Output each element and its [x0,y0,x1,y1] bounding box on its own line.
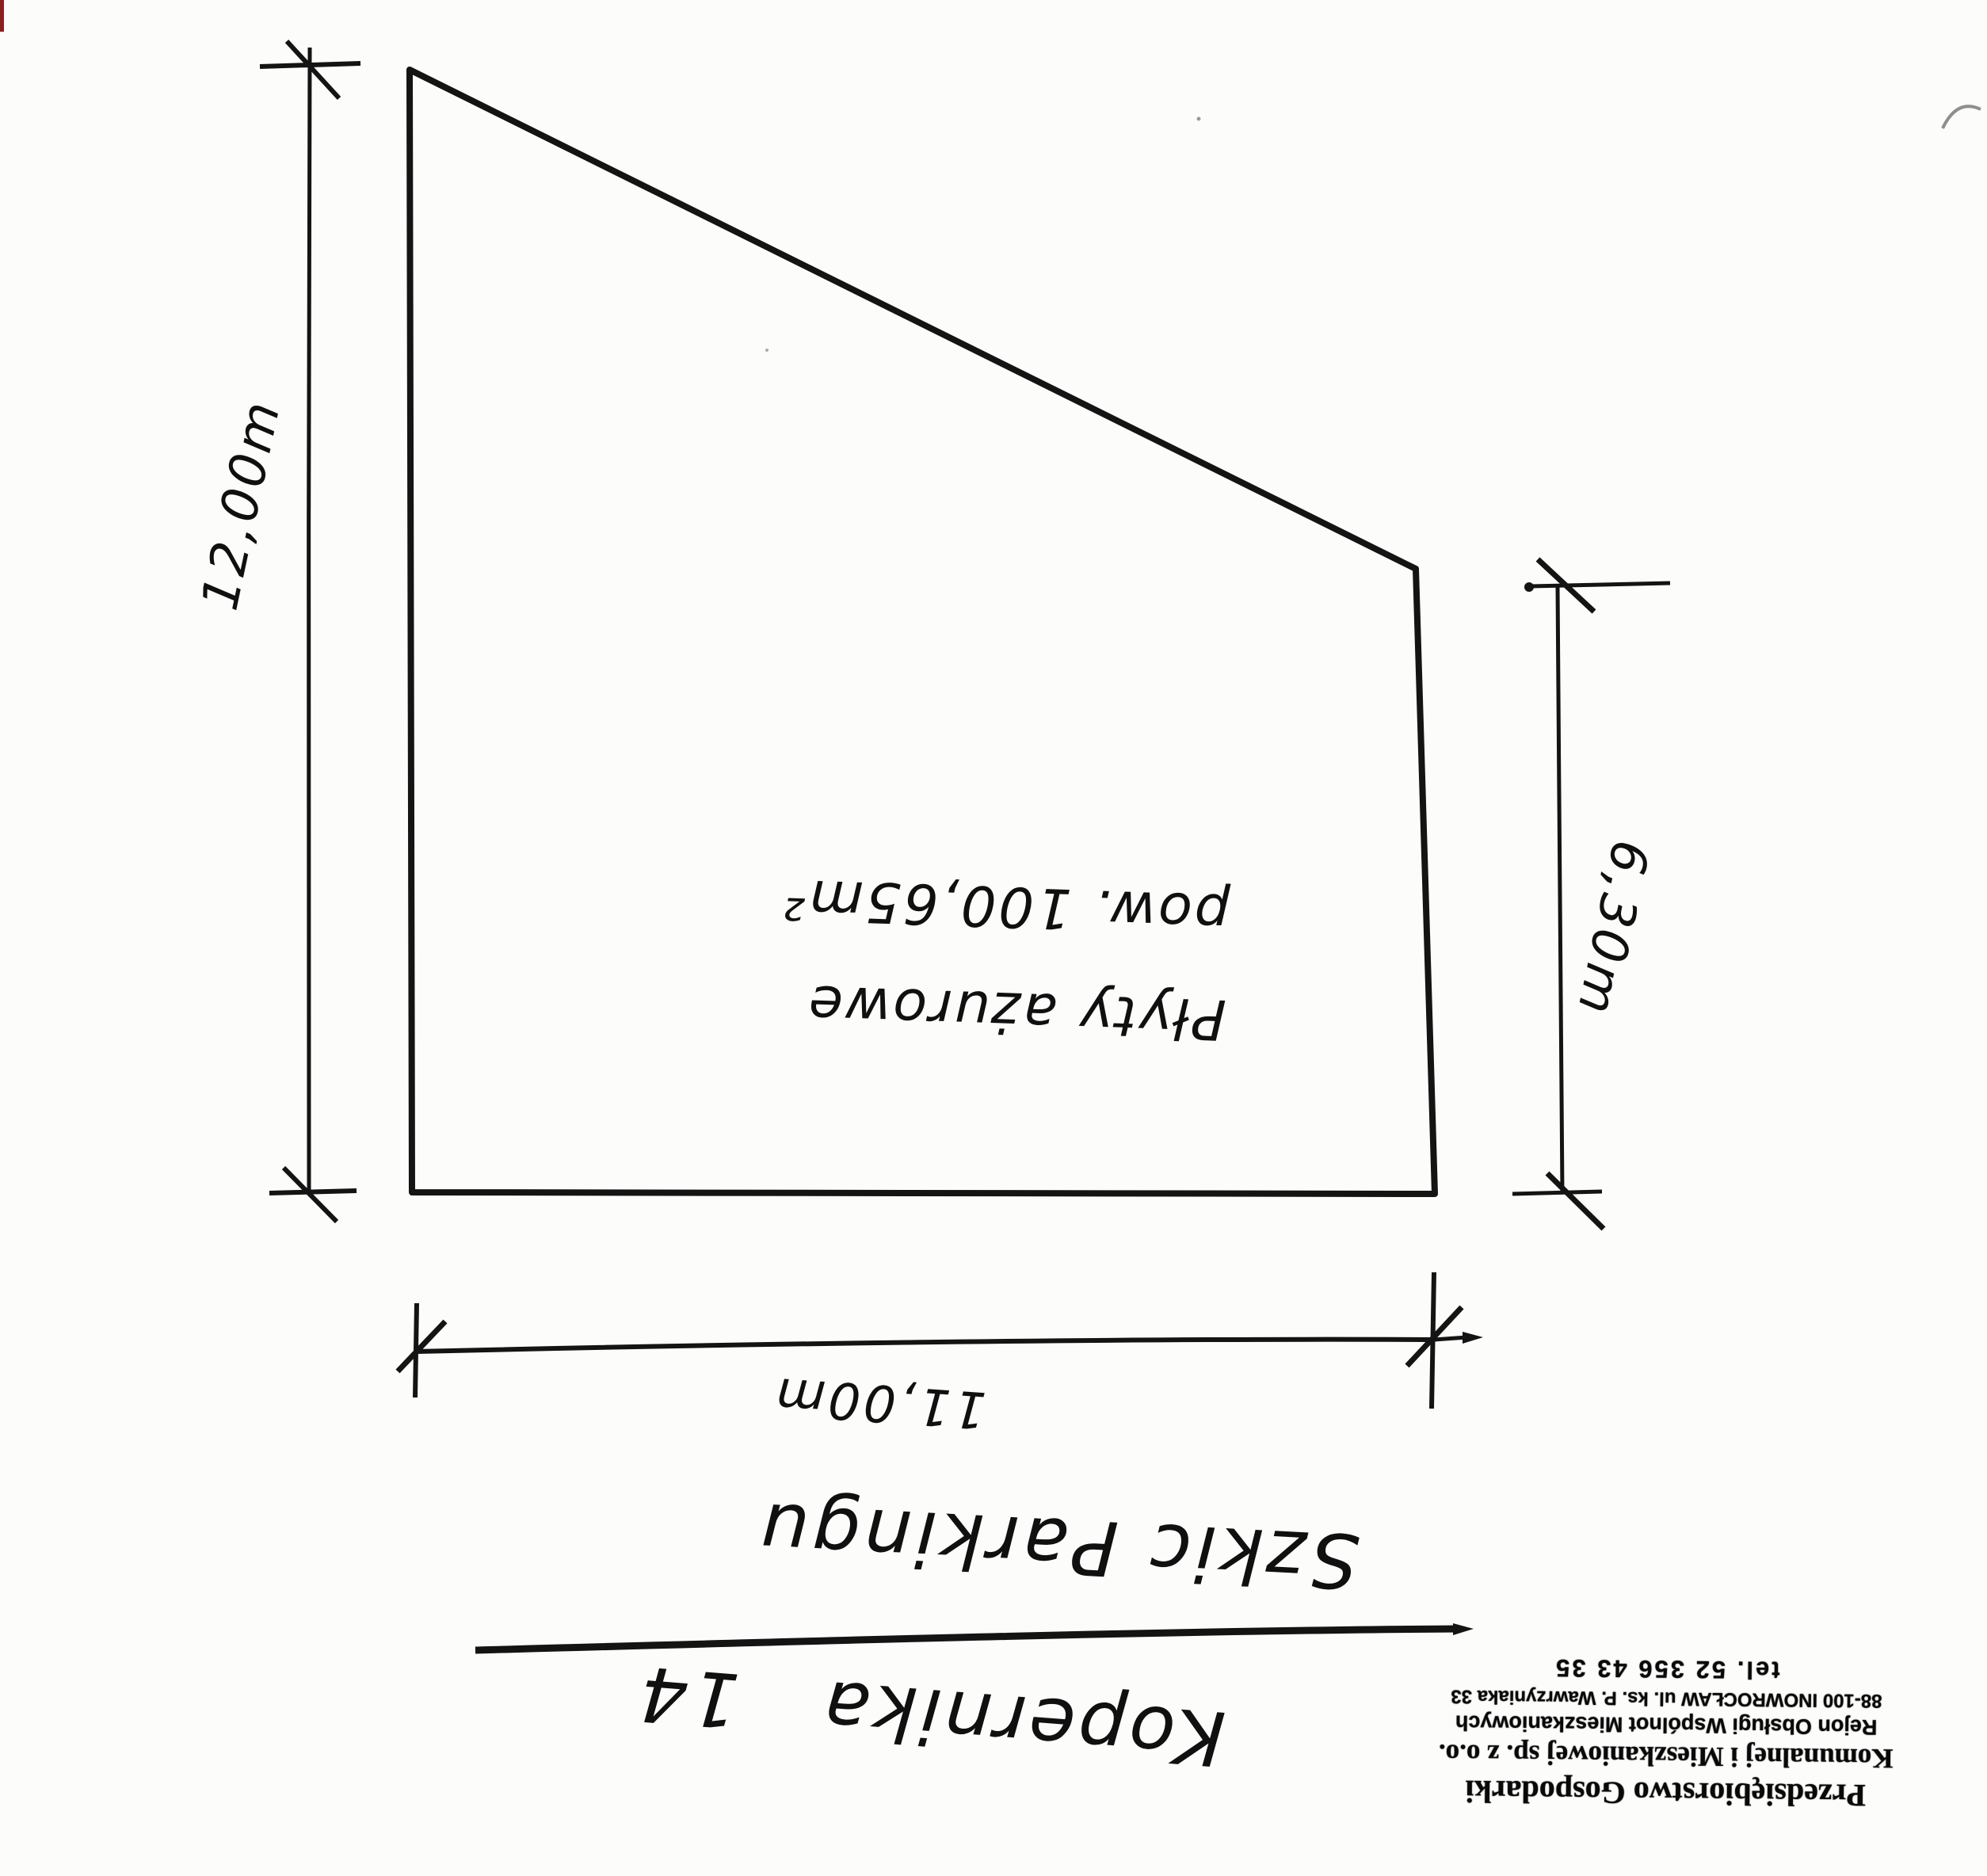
dimension-line-bottom [416,1340,1432,1352]
stamp-company-name-line1: Przedsiębiorstwo Gospodarki [1392,1771,1939,1816]
stamp-phone: tel. 52 356 43 35 [1394,1649,1940,1689]
scan-speck [765,349,768,352]
tick-arrow-arm [1434,1337,1467,1340]
extension-line-dot [1524,582,1534,592]
tick-slash [1547,1173,1604,1229]
stamp-company-name-line2: Komunalnej i Mieszkaniowej sp. z o.o. [1392,1736,1939,1776]
scan-speck [1197,117,1201,121]
tick-slash [287,41,339,98]
tick-slash [398,1321,445,1371]
underline-arrowhead [1453,1623,1474,1635]
company-stamp: Przedsiębiorstwo Gospodarki Komunalnej i… [1392,1649,1940,1816]
tick-arrowhead [1463,1332,1483,1344]
dimension-line-left [309,48,310,1192]
extension-line [1531,583,1670,586]
tick-mark [269,1191,357,1193]
scan-edge-artifact [0,0,4,32]
area-note: Płyty ażurowe pow. 100,65m² [448,834,1232,1072]
extension-line [1512,1192,1602,1194]
dimension-line-right [1558,586,1562,1193]
scan-squiggle-artifact [1943,106,1981,128]
scanned-sketch-sheet: 12,00m 6,30m 11,00m Płyty ażurowe pow. 1… [0,0,1987,1876]
